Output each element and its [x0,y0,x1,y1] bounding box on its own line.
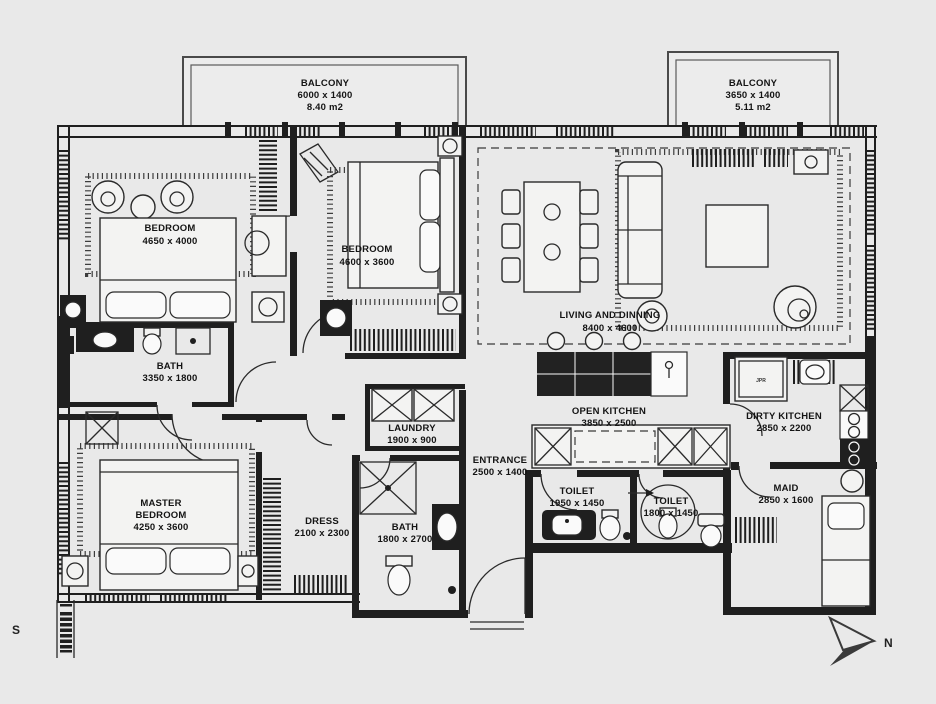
toilet-icon [701,525,721,547]
balcony-left-dims: 6000 x 1400 [297,90,352,101]
north-arrow-icon [830,641,874,666]
floor-plan-page: BALCONY 6000 x 1400 8.40 m2 BALCONY 3650… [0,0,936,704]
room-bedroom-2: BEDROOM 4600 x 3600 [300,136,462,340]
entrance-dims: 2500 x 1400 [472,467,527,478]
cabinet-icon [794,150,828,174]
open-kitchen-dims: 3850 x 2500 [581,418,636,429]
pillow-icon [420,170,440,220]
bedroom-1-dims: 4650 x 4000 [142,236,197,247]
armchair-icon [92,181,124,213]
stove-icon [840,439,868,467]
stool-icon [548,333,565,350]
room-toilet-1: TOILET 1950 x 1450 [542,486,631,540]
pillow-icon [106,292,166,318]
side-table-icon [841,470,863,492]
sink-icon [93,332,117,348]
toilet-icon [388,565,410,595]
chair-icon [580,190,598,214]
sink-icon [800,360,830,384]
chair-icon [502,258,520,282]
dirty-kitchen-dims: 2850 x 2200 [756,423,811,434]
section-marker-south: S [12,600,74,658]
master-bedroom-label-1: MASTER [140,498,181,509]
coffee-table-icon [706,205,768,267]
bath-1-dims: 3350 x 1800 [142,373,197,384]
pillow-icon [170,292,230,318]
headboard [440,158,454,292]
pillow-icon [106,548,166,574]
north-label: N [884,636,893,650]
entrance-label: ENTRANCE [473,455,527,466]
cabinet-icon [60,336,74,354]
master-bedroom-dims: 4250 x 3600 [133,522,188,533]
south-label: S [12,623,20,637]
room-maid: MAID 2850 x 1600 [735,470,870,606]
balcony-left-name: BALCONY [301,78,350,89]
toilet-tank [698,514,724,526]
balcony-right-name: BALCONY [729,78,778,89]
open-kitchen-label: OPEN KITCHEN [572,406,646,417]
room-toilet-2: TOILET 1800 x 1450 [628,485,724,547]
laundry-label: LAUNDRY [388,423,436,434]
living-label: LIVING AND DINNING [560,310,661,321]
bedroom-2-dims: 4600 x 3600 [339,257,394,268]
sink-icon [552,515,582,535]
room-dress: DRESS 2100 x 2300 [272,478,350,592]
chair-icon [580,258,598,282]
master-bedroom-label-2: BEDROOM [135,510,186,521]
maid-dims: 2850 x 1600 [758,495,813,506]
pillow-icon [828,503,864,529]
room-master-bedroom: MASTER BEDROOM 4250 x 3600 [62,412,258,590]
bedroom-1-label: BEDROOM [144,223,195,234]
room-bath-1: BATH 3350 x 1800 [60,328,210,384]
room-entrance: ENTRANCE 2500 x 1400 [472,455,527,478]
nightstand-icon [62,556,88,586]
toilet-icon [143,334,161,354]
toilet-1-dims: 1950 x 1450 [549,498,604,509]
floor-drain [448,586,456,594]
north-arrow-icon [830,618,874,650]
sink-icon [437,513,457,541]
nightstand-icon [252,292,284,322]
balcony-right: BALCONY 3650 x 1400 5.11 m2 [668,52,838,126]
maid-label: MAID [773,483,798,494]
bath-2-label: BATH [392,522,418,533]
appliance-label: JPR [756,378,766,384]
dirty-kitchen-label: DIRTY KITCHEN [746,411,822,422]
room-dirty-kitchen: JPR DIRTY KITCHEN 2850 x 2200 [735,357,868,467]
side-table-icon [131,195,155,219]
toilet-2-label: TOILET [654,496,689,507]
wall-post [225,122,231,138]
bedroom-2-label: BEDROOM [341,244,392,255]
bath-1-label: BATH [157,361,183,372]
balcony-right-area: 5.11 m2 [735,102,771,113]
room-bedroom-1: BEDROOM 4650 x 4000 [60,140,286,325]
chair-icon [502,224,520,248]
armchair-icon [161,181,193,213]
dress-dims: 2100 x 2300 [294,528,349,539]
pillow-icon [420,222,440,272]
pillow-icon [170,548,230,574]
compass: N [830,618,893,666]
chair-icon [580,224,598,248]
stool-icon [586,333,603,350]
room-living-dining: LIVING AND DINNING 8400 x 4600 [478,148,850,344]
balcony-left-area: 8.40 m2 [307,102,343,113]
dress-label: DRESS [305,516,339,527]
toilet-2-dims: 1800 x 1450 [643,508,698,519]
toilet-icon [600,516,620,540]
toilet-1-label: TOILET [560,486,595,497]
laundry-dims: 1900 x 900 [387,435,437,446]
room-open-kitchen: OPEN KITCHEN 3850 x 2500 [532,333,730,469]
nightstand-icon [238,556,258,586]
floor-drain [623,532,631,540]
chair-icon [502,190,520,214]
floor-plan: BALCONY 6000 x 1400 8.40 m2 BALCONY 3650… [0,0,936,704]
balcony-right-dims: 3650 x 1400 [725,90,780,101]
room-bath-2: BATH 1800 x 2700 [360,462,462,595]
room-laundry: LAUNDRY 1900 x 900 [372,389,454,446]
bath-2-dims: 1800 x 2700 [377,534,432,545]
stool-icon [624,333,641,350]
dining-table-icon [524,182,580,292]
balcony-left: BALCONY 6000 x 1400 8.40 m2 [183,57,466,126]
